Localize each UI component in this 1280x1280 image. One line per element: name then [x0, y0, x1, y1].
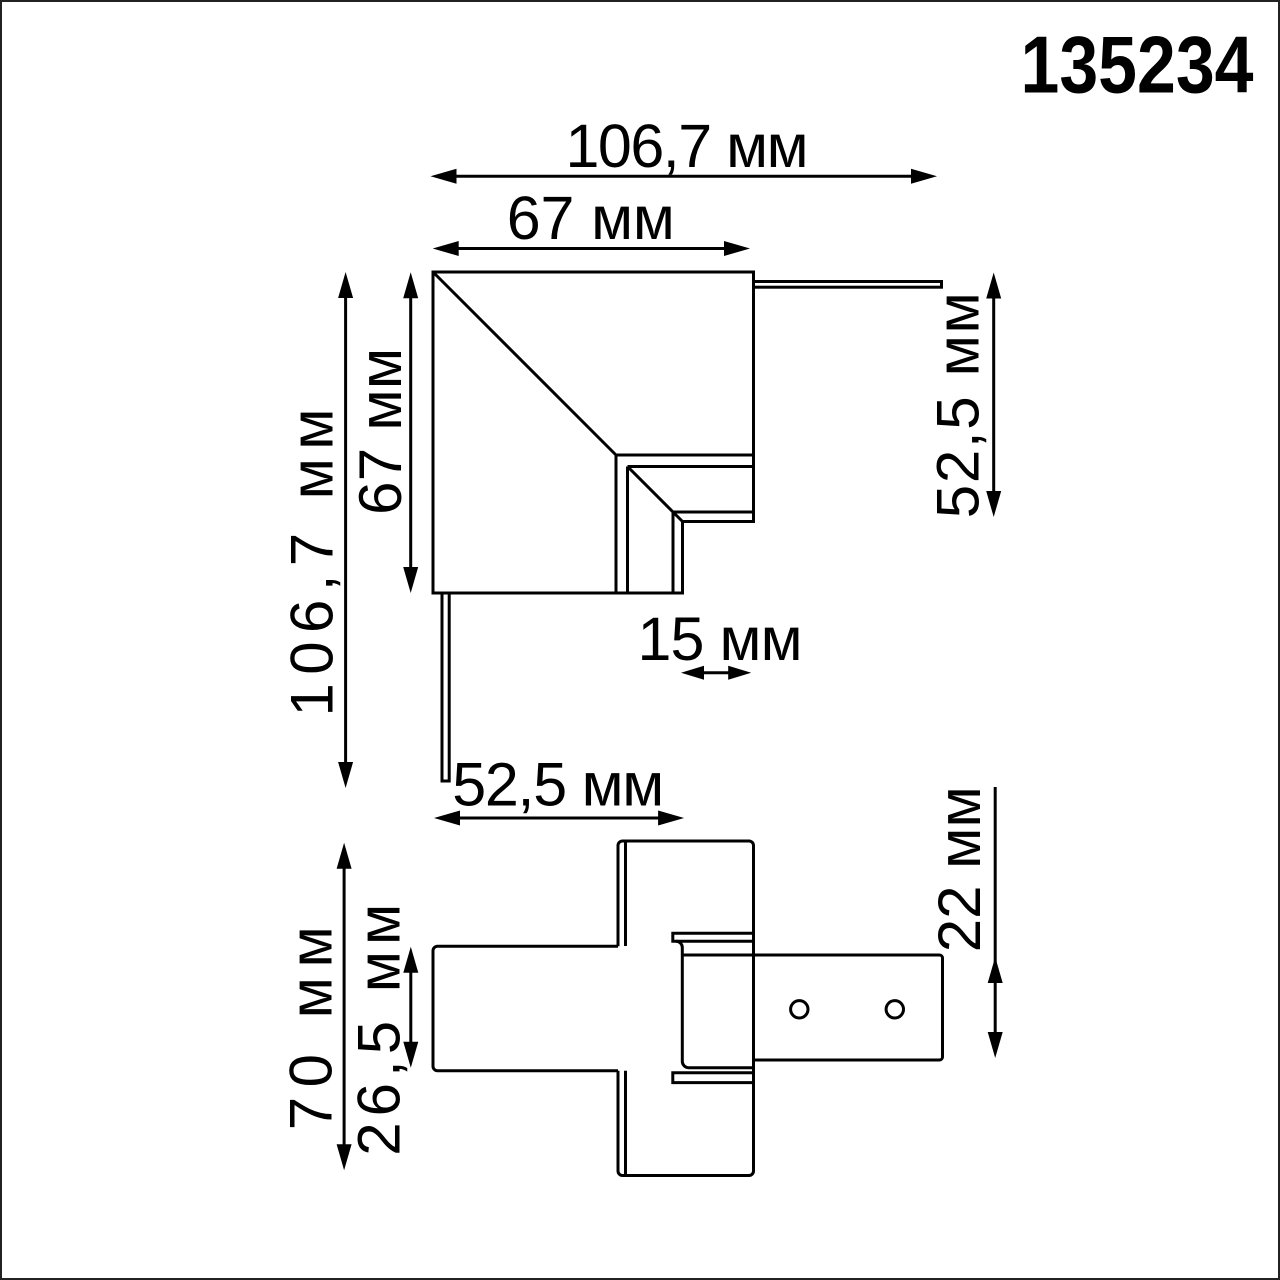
svg-text:67 мм: 67 мм: [347, 348, 414, 515]
svg-text:15 мм: 15 мм: [638, 605, 803, 673]
svg-text:70 мм: 70 мм: [278, 926, 345, 1130]
svg-text:52,5 мм: 52,5 мм: [452, 751, 664, 819]
svg-text:135234: 135234: [1021, 21, 1254, 111]
svg-text:67 мм: 67 мм: [507, 184, 675, 252]
svg-text:22 мм: 22 мм: [926, 786, 993, 952]
svg-text:106,7 мм: 106,7 мм: [566, 112, 809, 180]
